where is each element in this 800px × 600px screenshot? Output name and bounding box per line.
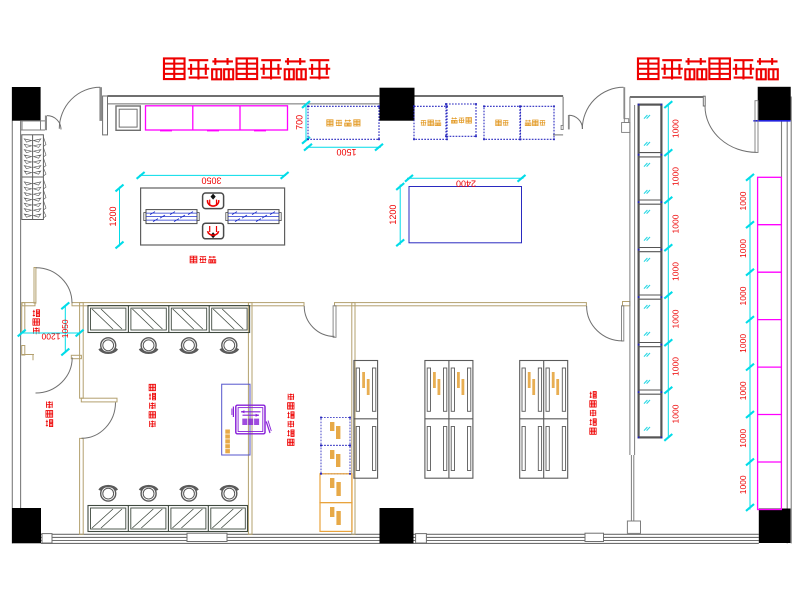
- svg-text:1000: 1000: [738, 191, 748, 210]
- svg-text:1000: 1000: [670, 309, 680, 328]
- svg-text:2400: 2400: [456, 179, 476, 189]
- svg-text:1000: 1000: [670, 214, 680, 233]
- svg-text:1200: 1200: [108, 206, 118, 226]
- svg-text:1000: 1000: [738, 286, 748, 305]
- svg-text:1000: 1000: [670, 404, 680, 423]
- svg-text:1000: 1000: [738, 239, 748, 258]
- svg-text:1000: 1000: [670, 262, 680, 281]
- svg-text:1200: 1200: [41, 332, 60, 342]
- svg-text:1200: 1200: [388, 205, 398, 225]
- svg-text:1000: 1000: [670, 167, 680, 186]
- svg-text:700: 700: [295, 115, 305, 130]
- svg-text:1050: 1050: [60, 319, 70, 338]
- svg-text:1000: 1000: [670, 119, 680, 138]
- svg-text:3050: 3050: [201, 176, 221, 186]
- svg-text:1000: 1000: [738, 429, 748, 448]
- svg-text:1000: 1000: [738, 334, 748, 353]
- svg-text:1000: 1000: [670, 357, 680, 376]
- svg-text:1000: 1000: [738, 475, 748, 494]
- svg-text:1500: 1500: [336, 147, 356, 157]
- svg-text:1000: 1000: [738, 381, 748, 400]
